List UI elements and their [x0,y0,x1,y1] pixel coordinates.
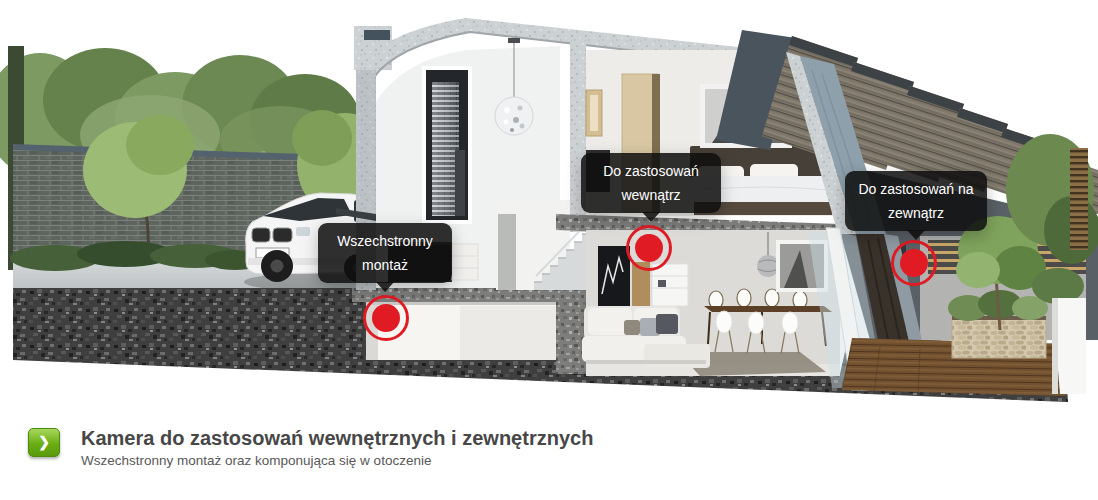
skyscraper-artwork [422,66,472,224]
expand-arrow-button[interactable]: ❯ [28,428,60,457]
caption-section: ❯ Kamera do zastosowań wewnętrznych i ze… [28,426,1098,469]
tooltip-indoor-line1: Do zastosowań [585,159,717,183]
caption-title: Kamera do zastosowań wewnętrznych i zewn… [81,426,593,450]
tooltip-mount-line2: montaż [322,253,448,277]
hotspot-marker-mount[interactable] [363,295,409,341]
kitchen-niche [652,264,688,306]
marker-dot [372,304,400,332]
chevron-right-icon: ❯ [38,434,50,450]
tooltip-indoor: Do zastosowań wewnątrz [581,153,721,213]
caption-subtitle: Wszechstronny montaż oraz komponująca si… [81,452,593,469]
hotspot-marker-indoor[interactable] [626,225,672,271]
concrete-column [556,298,586,374]
marker-dot [635,234,663,262]
marker-dot [900,249,928,277]
tooltip-outdoor-line2: zewnątrz [849,201,983,225]
wall-art-zigzag [598,246,630,308]
living-room [582,230,840,376]
hero-scene: Wszechstronny montaż Do zastosowań wewną… [0,0,1098,410]
tooltip-outdoor: Do zastosowań na zewnątrz [845,171,987,231]
tooltip-mount: Wszechstronny montaż [318,223,452,283]
tooltip-mount-line1: Wszechstronny [322,229,448,253]
slat-fence [1070,148,1088,250]
hotspot-marker-outdoor[interactable] [891,240,937,286]
tooltip-outdoor-line1: Do zastosowań na [849,177,983,201]
caption-text: Kamera do zastosowań wewnętrznych i zewn… [81,426,593,469]
tooltip-indoor-line2: wewnątrz [585,183,717,207]
